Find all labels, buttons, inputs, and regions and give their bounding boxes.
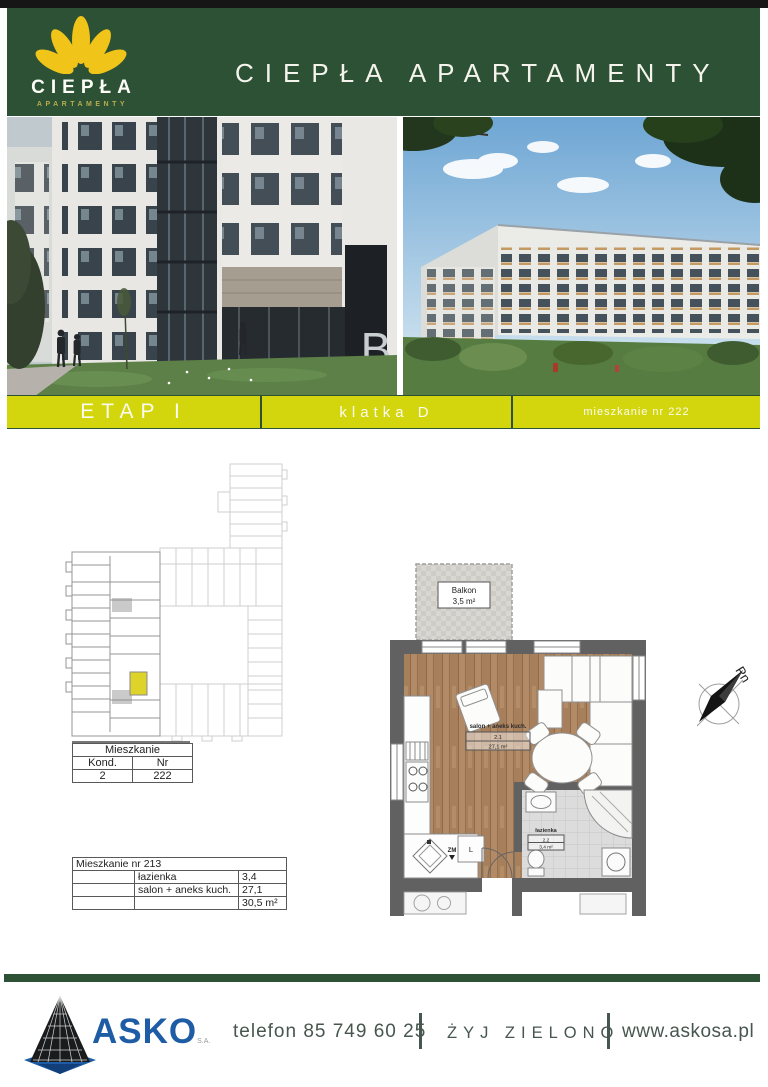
photo-building-closeup: B bbox=[7, 117, 397, 396]
banner-apartment: mieszkanie nr 222 bbox=[513, 396, 760, 428]
brand-text: ASKO bbox=[92, 1012, 197, 1051]
area-table-total: 30,5 m² bbox=[239, 897, 287, 910]
dishwasher-label: ZM bbox=[448, 848, 457, 854]
asko-logo-icon bbox=[20, 994, 100, 1082]
area-table-area: 27,1 bbox=[239, 884, 287, 897]
brand-suffix: S.A. bbox=[197, 1038, 210, 1045]
top-black-strip bbox=[0, 0, 768, 8]
lotus-flower-icon bbox=[33, 12, 129, 74]
ciepla-logo: CIEPŁA APARTAMENTY bbox=[21, 12, 141, 108]
banner-stage: ETAP I bbox=[7, 396, 260, 428]
area-table-room: łazienka bbox=[135, 871, 239, 884]
footer-divider-bar bbox=[4, 974, 760, 982]
stove bbox=[406, 762, 428, 802]
area-table-area: 3,4 bbox=[239, 871, 287, 884]
compass-icon: Pn bbox=[685, 652, 757, 736]
header-banner: CIEPŁA APARTAMENTY CIEPŁA APARTAMENTY bbox=[7, 8, 760, 116]
toilet bbox=[528, 868, 544, 876]
area-table-spacer bbox=[73, 897, 135, 910]
living-room-label: salon + aneks kuch. bbox=[470, 724, 527, 730]
fridge-label: L bbox=[469, 845, 473, 854]
unit-table-number-value: 222 bbox=[133, 770, 193, 783]
section-banner: ETAP I klatka D mieszkanie nr 222 bbox=[7, 395, 760, 429]
unit-table-floor-value: 2 bbox=[73, 770, 133, 783]
area-table-title: Mieszkanie nr 213 bbox=[73, 858, 287, 871]
unit-table-title: Mieszkanie bbox=[73, 744, 193, 757]
balcony: Balkon 3,5 m² bbox=[416, 564, 512, 640]
area-table: Mieszkanie nr 213 łazienka 3,4 salon + a… bbox=[72, 857, 287, 910]
balcony-area-label: 3,5 m² bbox=[453, 597, 476, 606]
unit-table: Mieszkanie Kond. Nr 2 222 bbox=[72, 743, 193, 783]
footer-slogan: ŻYJ ZIELONO bbox=[447, 1024, 619, 1043]
page-title: CIEPŁA APARTAMENTY bbox=[235, 58, 665, 89]
living-room-number: 2.1 bbox=[494, 735, 502, 741]
building-overview-plan bbox=[52, 452, 292, 744]
logo-subtitle: APARTAMENTY bbox=[21, 101, 141, 108]
footer-separator bbox=[419, 1013, 422, 1049]
photo-building-wide bbox=[403, 117, 760, 396]
brochure-page: CIEPŁA APARTAMENTY CIEPŁA APARTAMENTY bbox=[0, 0, 768, 1087]
washing-machine bbox=[602, 848, 630, 876]
living-room-area: 27,1 m² bbox=[489, 745, 508, 751]
area-table-room: salon + aneks kuch. bbox=[135, 884, 239, 897]
area-table-spacer bbox=[73, 871, 135, 884]
balcony-label: Balkon bbox=[452, 586, 476, 595]
area-table-spacer bbox=[73, 884, 135, 897]
logo-name: CIEPŁA bbox=[21, 77, 141, 99]
footer-website: www.askosa.pl bbox=[622, 1021, 754, 1043]
banner-staircase: klatka D bbox=[262, 396, 511, 428]
bathroom-number: 2.2 bbox=[543, 838, 550, 844]
area-table-room bbox=[135, 897, 239, 910]
unit-table-header-number: Nr bbox=[133, 757, 193, 770]
footer-phone: telefon 85 749 60 25 bbox=[233, 1021, 426, 1043]
footer-separator bbox=[607, 1013, 610, 1049]
unit-table-header-floor: Kond. bbox=[73, 757, 133, 770]
bathroom-label: łazienka bbox=[535, 828, 557, 834]
highlighted-unit-marker bbox=[130, 672, 147, 695]
apartment-floorplan: Balkon 3,5 m² bbox=[386, 556, 666, 918]
asko-brand-name: ASKOS.A. bbox=[92, 1012, 210, 1052]
bathroom-area: 3,4 m² bbox=[539, 845, 553, 851]
